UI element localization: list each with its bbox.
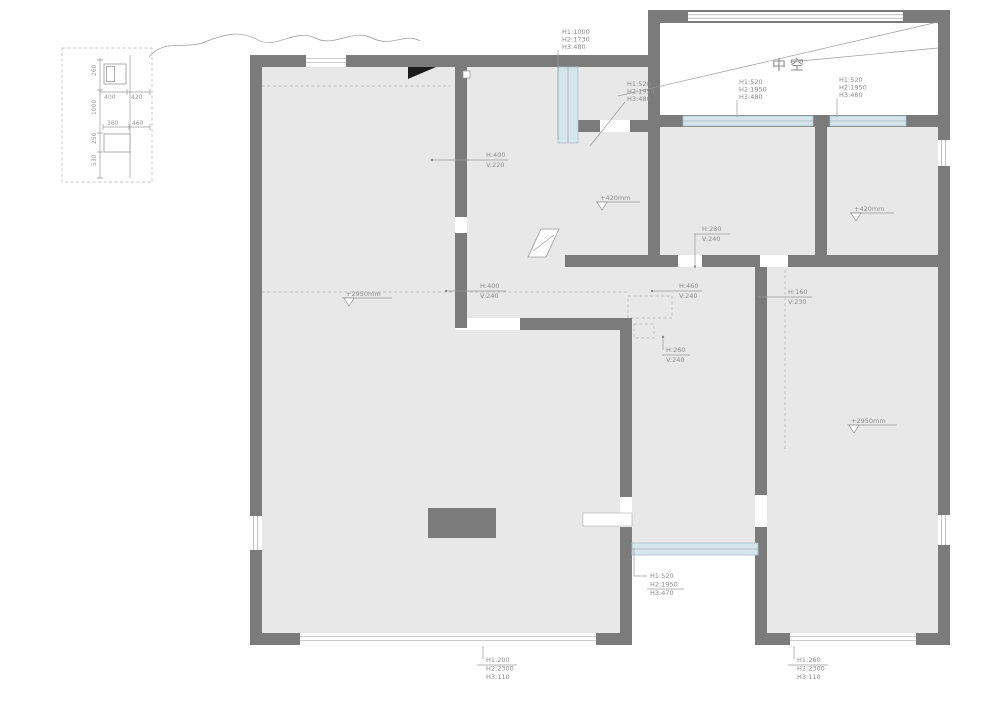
leader-dot xyxy=(445,290,447,292)
label-living-beam-1: H:400 xyxy=(480,282,499,290)
window-top-right xyxy=(688,12,903,21)
label-level-bath-a: +420mm xyxy=(600,194,631,202)
label-living-beam-2: V:240 xyxy=(480,292,499,300)
window-bottom-right xyxy=(790,633,916,645)
label-right-beam-2: V:230 xyxy=(788,298,807,306)
inset-dim-360: 360 xyxy=(107,120,119,127)
label-right-beam-1: H:160 xyxy=(788,288,807,296)
wall-hall-divider xyxy=(455,67,467,328)
label-bottom-mid-window-1: H1:520 xyxy=(650,572,674,580)
wall-mid-horizontal-lower xyxy=(520,318,632,330)
leader-dot xyxy=(662,336,664,338)
label-level-bath-b: +420mm xyxy=(854,205,885,213)
label-bottom-right-window-3: H3:110 xyxy=(797,673,821,681)
wall-right xyxy=(938,10,950,645)
label-bottom-right-window-1: H1:260 xyxy=(797,656,821,664)
label-mid-beam-1: H:460 xyxy=(679,282,698,290)
leader-void-lower xyxy=(790,48,938,62)
label-kitchen-beam-2: V:240 xyxy=(702,235,721,243)
label-bottom-right-window-2: H2:2300 xyxy=(797,665,825,673)
door-gap-master xyxy=(755,495,767,527)
inset-dim-420: 420 xyxy=(131,94,143,101)
inset-dim-400: 400 xyxy=(104,94,116,101)
window-bottom-left xyxy=(300,633,596,645)
inset-dim-530: 530 xyxy=(91,154,98,166)
label-hall-niche-2: V:220 xyxy=(486,161,505,169)
label-bottom-mid-window-2: H2:1950 xyxy=(650,581,678,589)
label-level-master: +2950mm xyxy=(851,417,886,425)
label-void: 中空 xyxy=(772,58,808,74)
floor-hallway xyxy=(467,67,648,318)
floor-master-room xyxy=(767,267,938,633)
label-top-right-window1-3: H3:480 xyxy=(739,93,763,101)
floor-room-bottom-middle xyxy=(632,267,755,543)
wall-junction-box xyxy=(463,71,470,78)
window-right-wall-upper xyxy=(938,140,950,166)
window-top-left-gap xyxy=(306,55,346,67)
window-left-wall xyxy=(250,516,262,550)
label-bottom-left-window-1: H1:200 xyxy=(486,656,510,664)
label-kitchen-beam-1: H:280 xyxy=(702,225,721,233)
door-leaf xyxy=(583,513,632,526)
inset-dim-260: 260 xyxy=(91,64,98,76)
label-top-left-window-3: H3:480 xyxy=(562,43,586,51)
door-gap-hall xyxy=(455,217,467,233)
label-lower-beam-2: V:240 xyxy=(666,356,685,364)
label-hall-niche-1: H:400 xyxy=(486,151,505,159)
wall-top-rooms-divider xyxy=(815,115,827,267)
wall-left xyxy=(250,55,262,645)
label-top-mid-window-3: H3:480 xyxy=(627,95,651,103)
floor-plan-drawing: H1:1000 H2:1730 H3:480 H1:520 H2:1950 H3… xyxy=(0,0,1000,707)
detail-callout-squiggle xyxy=(149,34,420,57)
inset-box-top-inner xyxy=(107,67,115,82)
label-bottom-left-window-3: H3:110 xyxy=(486,673,510,681)
leader-dot xyxy=(651,290,653,292)
wall-bottom-middle-right xyxy=(755,267,767,645)
door-gap-mid-wall-1 xyxy=(678,255,702,267)
floors xyxy=(262,67,938,633)
inset-box-bottom xyxy=(104,134,130,152)
wall-bath-right xyxy=(648,115,660,267)
floor-room-top-middle xyxy=(660,127,815,255)
label-level-living: +2950mm xyxy=(346,290,381,298)
detail-inset: 260 400 420 1000 360 460 250 530 xyxy=(62,48,152,182)
inset-dim-250: 250 xyxy=(91,132,98,144)
wall-bottom-middle-left xyxy=(620,318,632,645)
door-gap-mid-wall-2 xyxy=(760,255,788,267)
inset-dim-1000: 1000 xyxy=(91,100,98,115)
label-mid-beam-2: V:240 xyxy=(679,292,698,300)
wall-step-connector xyxy=(648,10,660,127)
label-bottom-left-window-2: H2:2300 xyxy=(486,665,514,673)
leader-dot xyxy=(694,265,696,267)
floor-plan-canvas: H1:1000 H2:1730 H3:480 H1:520 H2:1950 H3… xyxy=(0,0,1000,707)
label-top-right-window2-3: H3:480 xyxy=(839,91,863,99)
floor-room-top-right xyxy=(827,127,938,255)
window-right-wall-lower xyxy=(938,515,950,545)
door-gap-bath xyxy=(600,120,630,132)
floor-dining-area xyxy=(262,330,620,633)
label-bottom-mid-window-3: H3:470 xyxy=(650,589,674,597)
leader-dot xyxy=(431,159,433,161)
wall-mid-horizontal xyxy=(565,255,938,267)
inset-dim-460: 460 xyxy=(132,120,144,127)
wall-column xyxy=(428,508,496,538)
label-lower-beam-1: H:260 xyxy=(666,346,685,354)
